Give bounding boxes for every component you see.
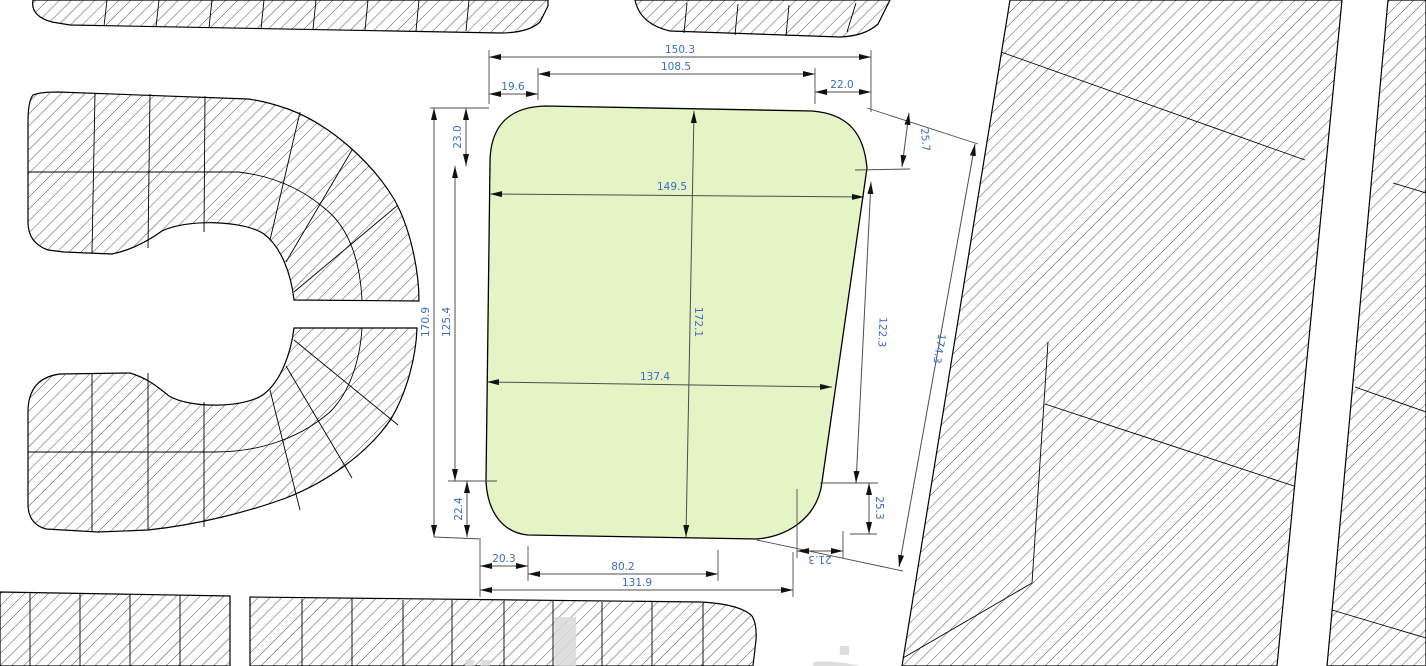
neighbor-block-right-large	[902, 0, 1342, 666]
dim-label-left-mid: 125.4	[441, 307, 453, 337]
dim-label-right-lower: 25.3	[873, 496, 885, 519]
dim-label-bottom-overall: 131.9	[622, 577, 652, 589]
neighbor-block-lower-arm	[28, 328, 417, 532]
dim-label-bottom-left-offset: 20.3	[492, 553, 515, 565]
neighbor-block-bottom-strip-left	[0, 592, 230, 666]
drawing-canvas: 150.3 108.5 19.6 22.0 23.0 170.9 125.4 2…	[0, 0, 1426, 666]
dim-label-left-upper: 23.0	[452, 125, 464, 148]
dim-label-mid-upper-width: 149.5	[657, 181, 687, 193]
dim-label-right-mid: 122.3	[875, 317, 889, 348]
dim-label-top-left-offset: 19.6	[501, 81, 525, 93]
dim-label-bottom-right-offset: 21.3	[808, 553, 831, 565]
dim-label-right-overall: 174.3	[930, 333, 947, 365]
dim-label-mid-height: 172.1	[692, 307, 704, 337]
dim-label-mid-lower-width: 137.4	[640, 371, 670, 383]
dim-label-right-upper: 25.7	[918, 128, 932, 152]
neighbor-block-far-right	[1327, 0, 1426, 666]
dim-label-bottom-inner: 80.2	[611, 561, 634, 573]
neighbor-block-upper-arm	[28, 92, 419, 301]
dim-label-top-inner: 108.5	[661, 61, 691, 73]
neighbor-block-top-band-left	[33, 0, 548, 33]
dim-label-left-overall: 170.9	[420, 307, 432, 337]
dim-label-left-lower: 22.4	[453, 497, 465, 521]
watermark-text: خمسات	[418, 597, 892, 666]
dim-label-top-right-offset: 22.0	[830, 79, 853, 91]
neighbor-block-top-band-right	[635, 0, 890, 37]
dim-label-top-overall: 150.3	[665, 44, 695, 56]
cad-parcel-map: 150.3 108.5 19.6 22.0 23.0 170.9 125.4 2…	[0, 0, 1426, 666]
subject-parcel[interactable]	[486, 106, 867, 539]
